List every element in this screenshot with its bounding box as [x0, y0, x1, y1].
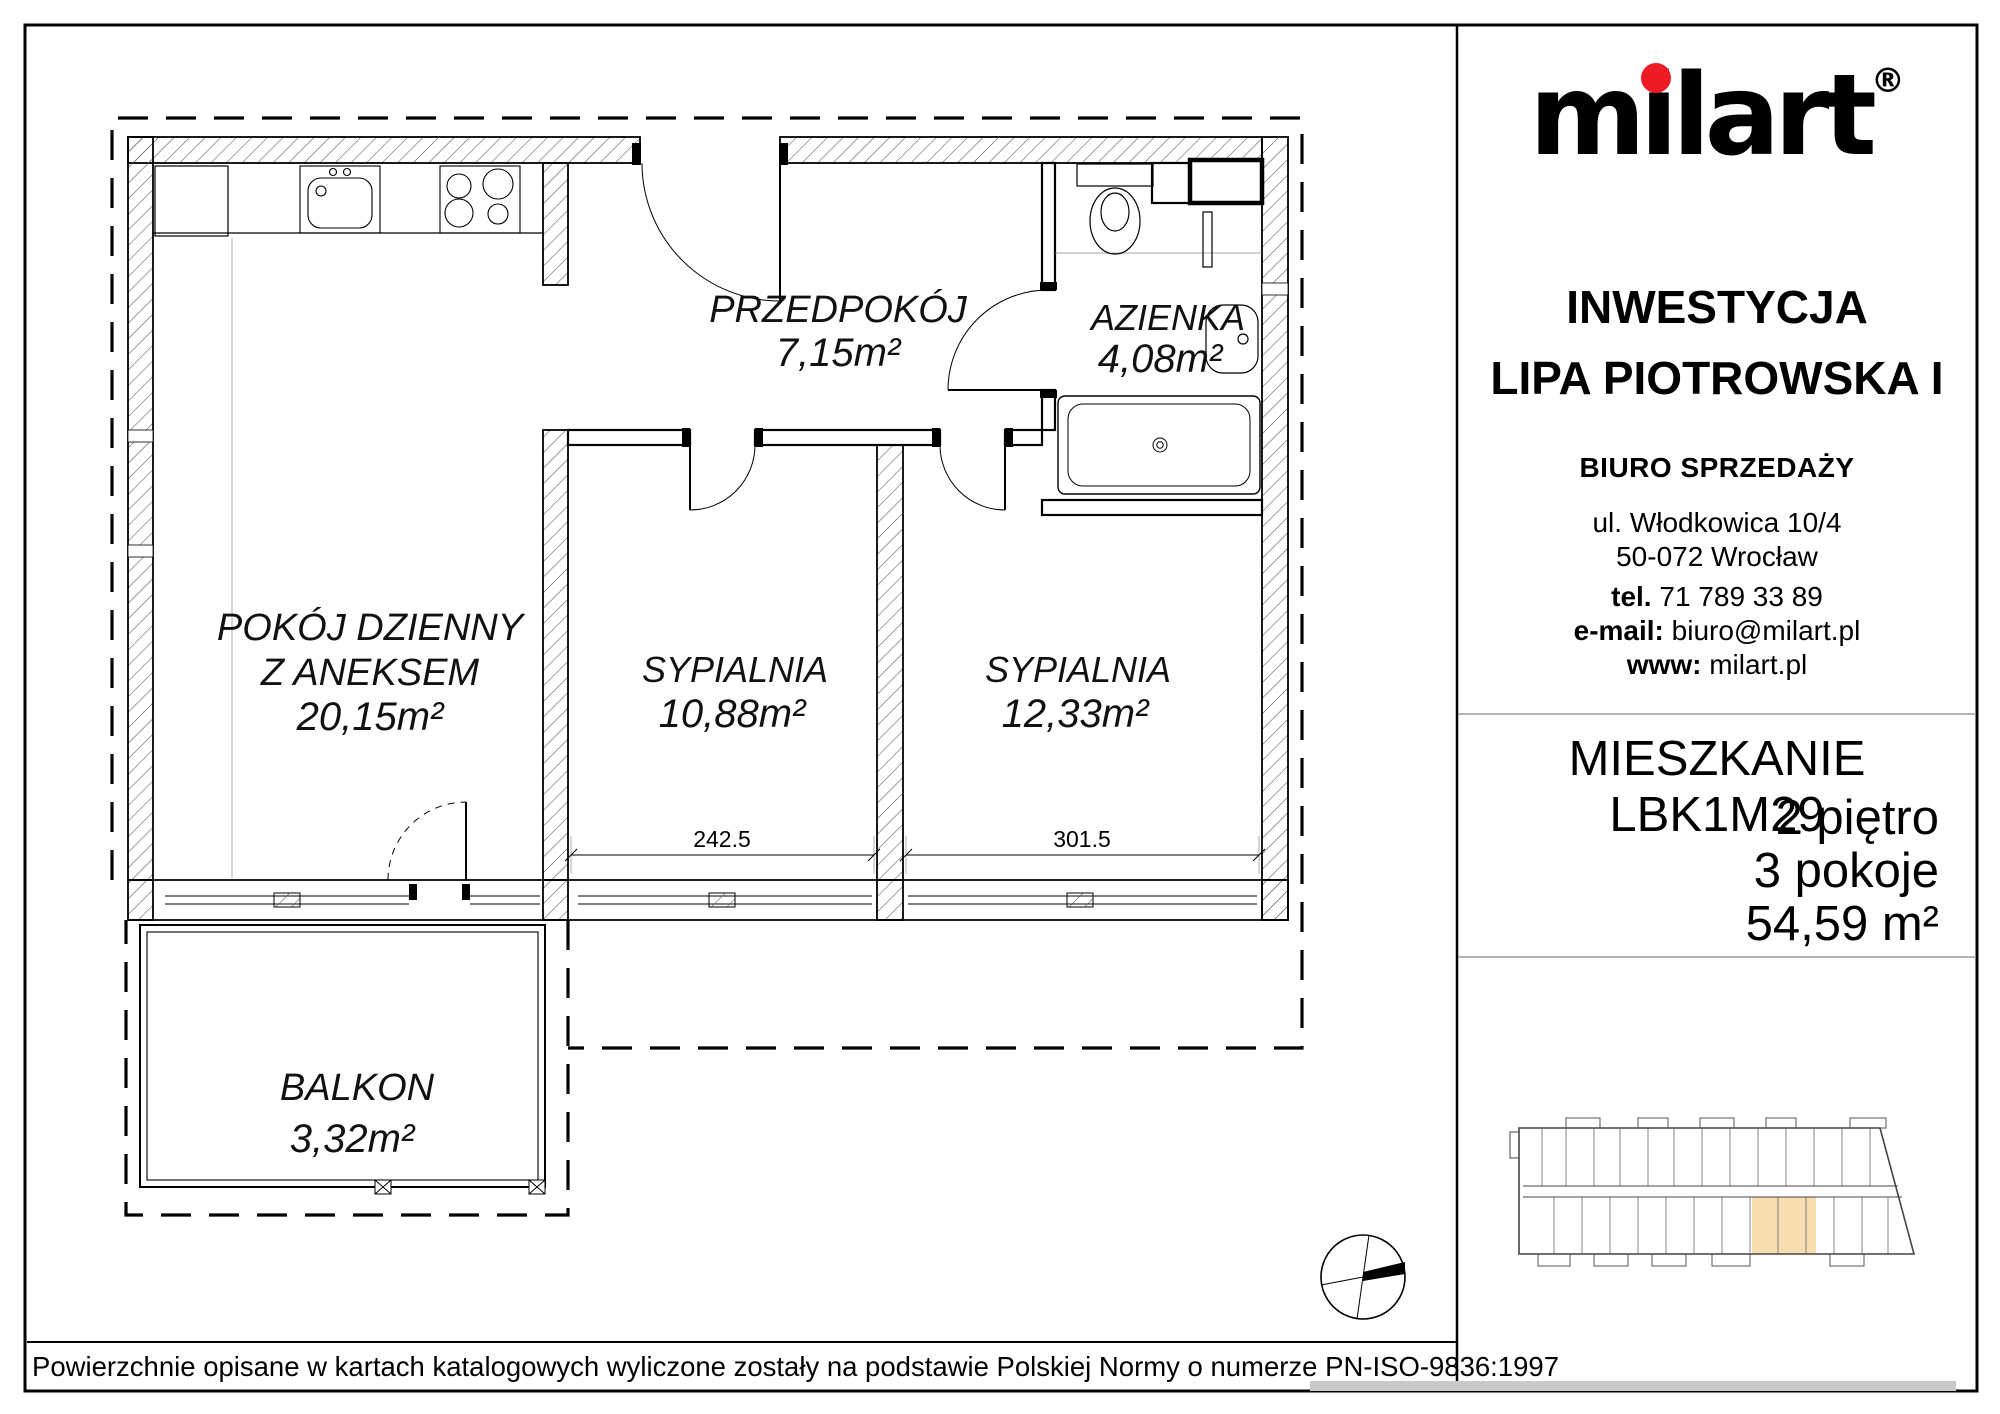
- email-line: e-mail: biuro@milart.pl: [1459, 614, 1975, 648]
- dimension-bedroom1: 242.5: [693, 826, 751, 852]
- investment-name: LIPA PIOTROWSKA I: [1459, 343, 1975, 414]
- compass-icon: [1321, 1235, 1405, 1319]
- apartment-floor: 2 piętro: [1459, 792, 1939, 845]
- room-label-hall: PRZEDPOKÓJ: [709, 288, 968, 331]
- bedroom1-door: [690, 445, 755, 510]
- room-labels: POKÓJ DZIENNY Z ANEKSEM 20,15m² PRZEDPOK…: [217, 288, 1245, 1161]
- logo-letter-m: m: [1529, 51, 1640, 181]
- phone-line: tel. 71 789 33 89: [1459, 580, 1975, 614]
- www-address[interactable]: milart.pl: [1701, 649, 1807, 680]
- footer-disclaimer: Powierzchnie opisane w kartach katalogow…: [27, 1341, 1456, 1390]
- room-area-bath: 4,08m²: [1098, 337, 1224, 381]
- duct-shaft: [1190, 160, 1262, 203]
- entrance-door: [642, 163, 780, 301]
- logo-letter-i: i: [1640, 58, 1672, 176]
- room-label-bedroom2: SYPIALNIA: [985, 649, 1171, 690]
- sales-office-contact: tel. 71 789 33 89 e-mail: biuro@milart.p…: [1459, 580, 1975, 682]
- toilet-icon: [1077, 164, 1153, 254]
- room-label-bath: AZIENKA: [1089, 297, 1245, 338]
- room-area-bedroom2: 12,33m²: [1002, 692, 1150, 736]
- window-sill-marks: [274, 893, 1093, 907]
- www-label: www:: [1627, 649, 1702, 680]
- brand-logo: milart®: [1459, 58, 1975, 176]
- room-area-living: 20,15m²: [296, 695, 445, 739]
- minimap-outline: [1519, 1128, 1914, 1254]
- catalog-page: { "brand": { "logo_m": "m", "logo_i": "i…: [0, 0, 2000, 1414]
- floor-plan-drawing: 242.5 301.5 POKÓJ DZIENNY Z ANEKSEM 20,1…: [0, 0, 2000, 1414]
- sales-office-address: ul. Włodkowica 10/4 50-072 Wrocław: [1459, 506, 1975, 573]
- dimension-bedroom2: 301.5: [1053, 826, 1111, 852]
- kitchen-sink-icon: [300, 166, 380, 233]
- email-label: e-mail:: [1574, 615, 1664, 646]
- kitchen-annex: [153, 166, 543, 236]
- bathtub-icon: [1058, 396, 1260, 494]
- balcony-door: [388, 802, 466, 880]
- address-line-1: ul. Włodkowica 10/4: [1459, 506, 1975, 540]
- registered-trademark-icon: ®: [1871, 61, 1905, 101]
- phone-label: tel.: [1611, 581, 1651, 612]
- door-jambs: [409, 143, 1057, 900]
- www-line: www: milart.pl: [1459, 648, 1975, 682]
- bedroom2-door: [940, 445, 1005, 510]
- room-label-bedroom1: SYPIALNIA: [642, 649, 828, 690]
- room-label-living-2: Z ANEKSEM: [260, 652, 480, 694]
- brand-logo-word: milart: [1529, 51, 1871, 181]
- duct-small: [1152, 163, 1190, 203]
- apartment-details: 2 piętro 3 pokoje 54,59 m²: [1459, 792, 1975, 951]
- dimension-lines: [565, 849, 1265, 861]
- sales-office-title: BIURO SPRZEDAŻY: [1459, 452, 1975, 484]
- investment-label: INWESTYCJA: [1459, 272, 1975, 343]
- apartment-area: 54,59 m²: [1459, 898, 1939, 951]
- apartment-rooms: 3 pokoje: [1459, 845, 1939, 898]
- building-minimap: [1510, 1118, 1914, 1266]
- room-area-bedroom1: 10,88m²: [659, 692, 807, 736]
- stove-icon: [440, 166, 520, 233]
- room-area-balcony: 3,32m²: [290, 1117, 416, 1161]
- room-label-balcony: BALKON: [280, 1067, 435, 1109]
- minimap-partitions: [1542, 1128, 1888, 1254]
- email-address[interactable]: biuro@milart.pl: [1664, 615, 1860, 646]
- kitchen-cabinet: [155, 166, 228, 236]
- window-band: [128, 880, 1288, 920]
- room-label-living-1: POKÓJ DZIENNY: [217, 606, 526, 649]
- brand-red-dot-icon: [1641, 63, 1671, 93]
- phone-number: 71 789 33 89: [1652, 581, 1823, 612]
- logo-letters-rest: lart: [1672, 51, 1871, 181]
- investment-heading: INWESTYCJA LIPA PIOTROWSKA I: [1459, 272, 1975, 415]
- doors: [388, 163, 1048, 880]
- room-area-hall: 7,15m²: [776, 331, 902, 375]
- address-line-2: 50-072 Wrocław: [1459, 540, 1975, 574]
